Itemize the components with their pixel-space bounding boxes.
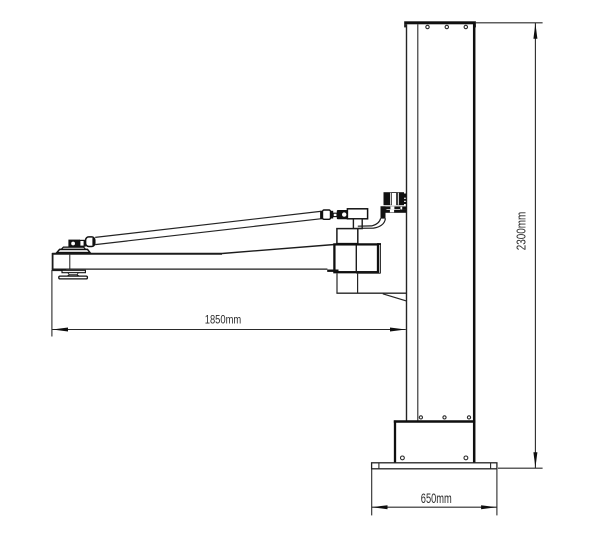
svg-text:2300mm: 2300mm <box>514 212 529 251</box>
svg-text:650mm: 650mm <box>421 490 452 506</box>
svg-text:1850mm: 1850mm <box>205 312 242 326</box>
